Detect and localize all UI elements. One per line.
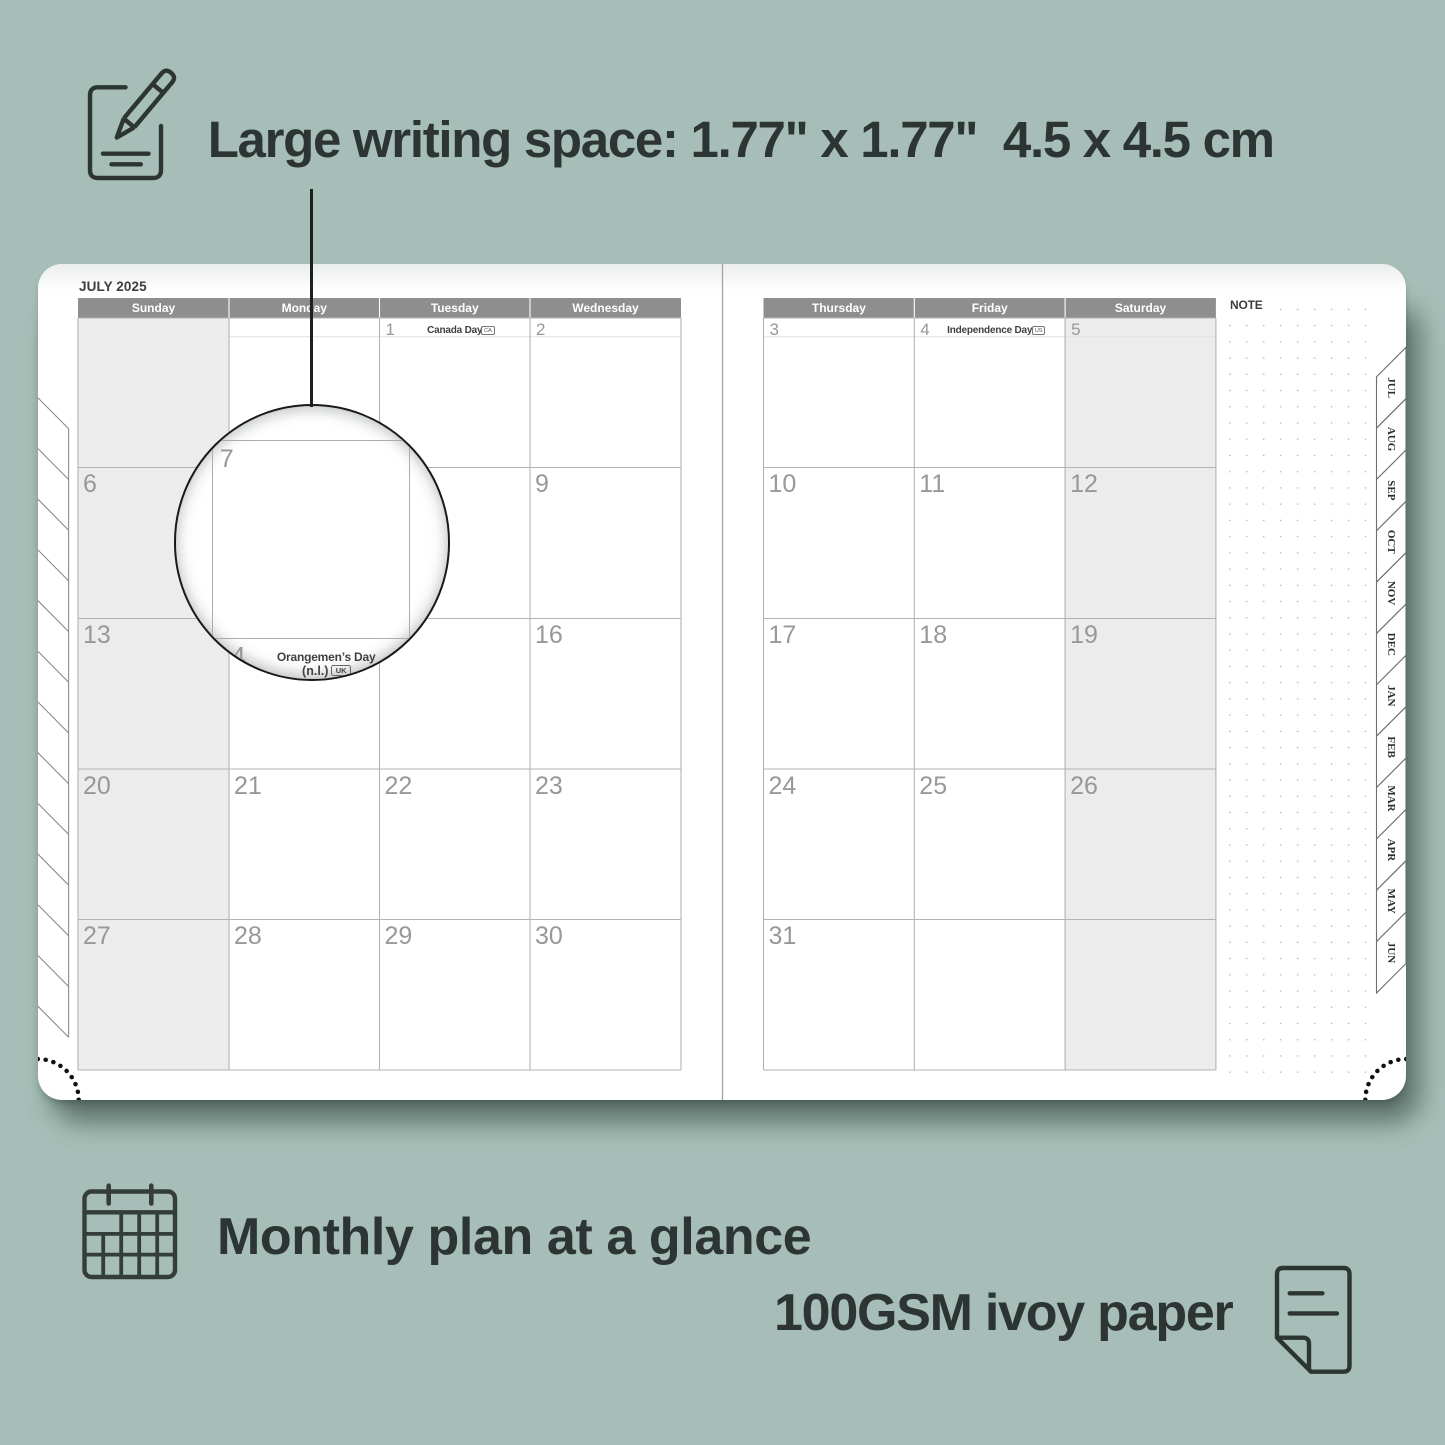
svg-text:MAR: MAR: [1385, 785, 1397, 812]
svg-text:JAN: JAN: [1385, 685, 1397, 706]
svg-text:FEB: FEB: [1385, 736, 1397, 758]
svg-text:OCT: OCT: [1385, 530, 1397, 555]
svg-text:JUN: JUN: [1385, 942, 1397, 963]
svg-text:MAY: MAY: [1385, 889, 1397, 914]
svg-text:APR: APR: [1385, 839, 1397, 863]
svg-text:JUL: JUL: [1385, 377, 1397, 398]
svg-text:NOV: NOV: [1385, 581, 1397, 606]
svg-text:SEP: SEP: [1385, 480, 1397, 500]
svg-text:AUG: AUG: [1385, 427, 1397, 452]
svg-text:DEC: DEC: [1385, 633, 1397, 656]
